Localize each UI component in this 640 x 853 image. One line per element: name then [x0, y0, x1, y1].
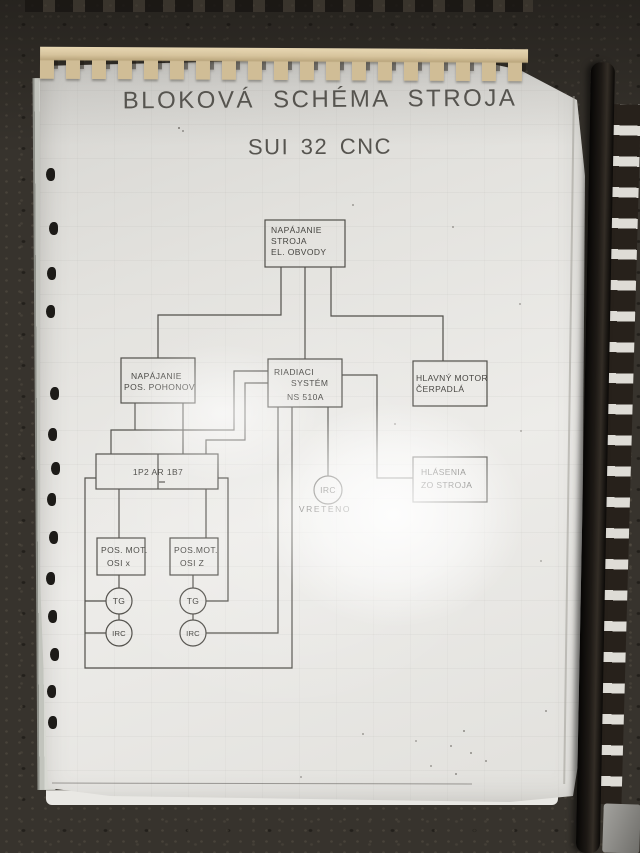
- black-bound-book: [585, 62, 640, 853]
- book-corner-gray: [602, 803, 640, 853]
- dirt-speckles: [178, 127, 180, 129]
- box-napajanie-stroja: NAPÁJANIE STROJA EL. OBVODY: [265, 220, 345, 267]
- svg-text:NAPÁJANIE: NAPÁJANIE: [271, 225, 322, 235]
- comb-binding-top: [40, 47, 528, 82]
- glare-main: [268, 398, 530, 632]
- photo-of-bound-diagram-page: BLOKOVÁ SCHÉMA STROJA SUI 32 CNC: [0, 0, 640, 853]
- svg-text:EL. OBVODY: EL. OBVODY: [271, 247, 327, 257]
- svg-text:STROJA: STROJA: [271, 236, 307, 246]
